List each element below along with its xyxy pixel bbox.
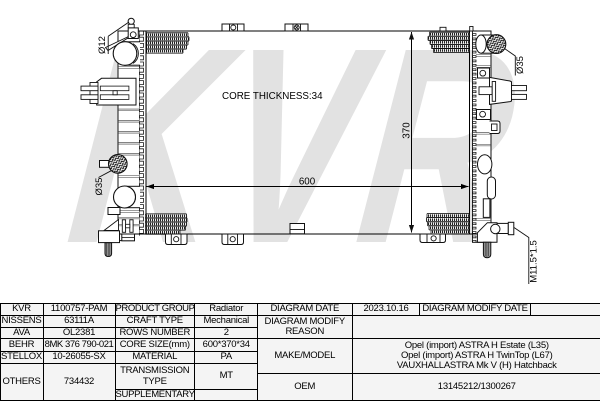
svg-text:Ø35: Ø35 [515, 56, 526, 74]
svg-text:600: 600 [299, 176, 316, 187]
svg-text:370: 370 [401, 122, 412, 139]
svg-text:Ø35: Ø35 [94, 178, 105, 196]
svg-text:CORE THICKNESS:34: CORE THICKNESS:34 [222, 91, 323, 102]
svg-text:M11.5*1.5: M11.5*1.5 [529, 240, 540, 283]
svg-text:Ø12: Ø12 [97, 36, 108, 54]
